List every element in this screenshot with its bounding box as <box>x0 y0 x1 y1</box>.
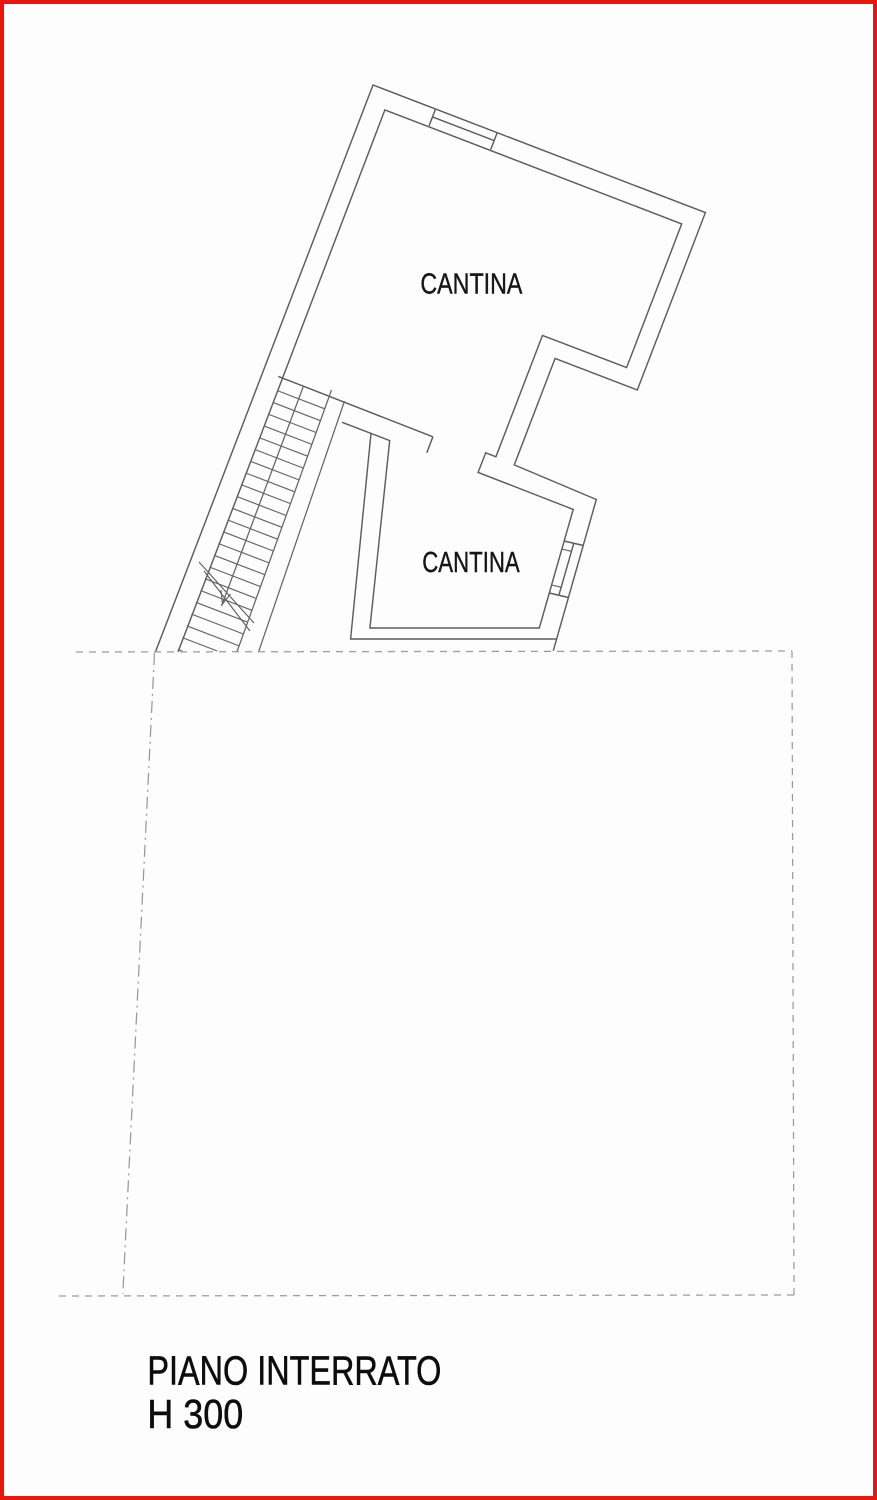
svg-text:H 300: H 300 <box>147 1391 243 1437</box>
svg-text:CANTINA: CANTINA <box>422 547 520 579</box>
svg-text:PIANO INTERRATO: PIANO INTERRATO <box>147 1348 441 1394</box>
svg-text:CANTINA: CANTINA <box>420 269 522 301</box>
